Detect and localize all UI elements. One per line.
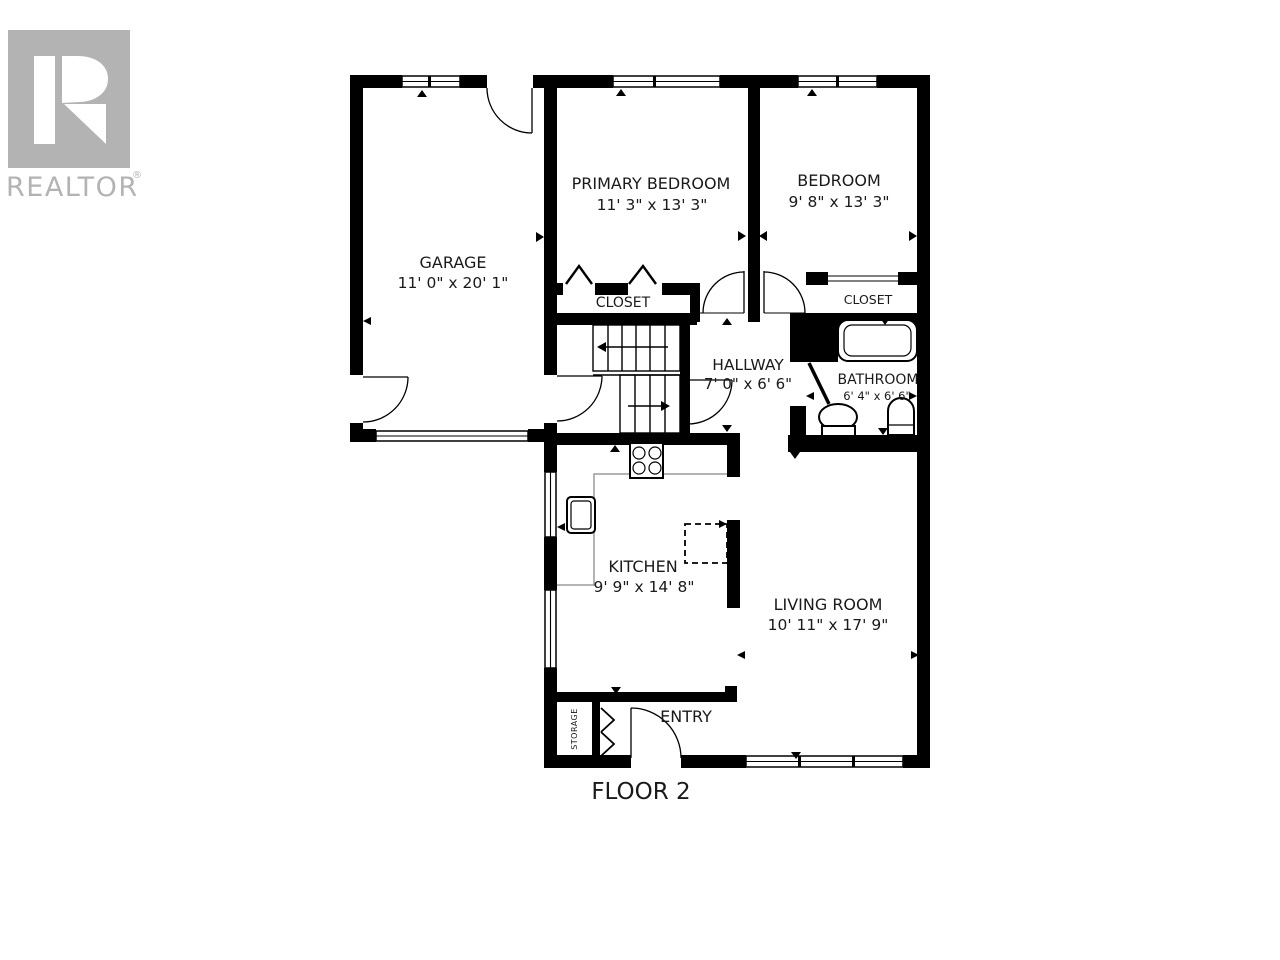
closet-bifold-doors xyxy=(566,266,656,284)
stove xyxy=(630,443,663,478)
garage-window xyxy=(402,76,460,87)
kitchen-dims: 9' 9" x 14' 8" xyxy=(594,578,695,596)
floor-plan-canvas: REALTOR ® xyxy=(0,0,1280,960)
kitchen-window-upper xyxy=(545,472,556,537)
exterior-door-top xyxy=(487,88,532,133)
primary-bedroom-door xyxy=(700,271,744,313)
registered-mark: ® xyxy=(132,170,142,181)
dashed-appliance xyxy=(685,524,727,563)
realtor-logo-text: REALTOR xyxy=(6,172,139,203)
floor-title: FLOOR 2 xyxy=(591,779,690,805)
primary-bedroom-label: PRIMARY BEDROOM xyxy=(572,174,731,193)
toilet xyxy=(819,404,857,436)
living-room-dims: 10' 11" x 17' 9" xyxy=(768,616,889,634)
bedroom-dims: 9' 8" x 13' 3" xyxy=(789,193,890,211)
bathroom-sink xyxy=(888,398,914,435)
realtor-logo: REALTOR ® xyxy=(6,30,142,203)
garage-label: GARAGE xyxy=(420,253,487,272)
primary-bedroom-dims: 11' 3" x 13' 3" xyxy=(597,196,708,214)
garage-side-door xyxy=(363,377,408,422)
bathtub xyxy=(838,320,917,361)
stairs xyxy=(593,325,680,433)
hallway-label: HALLWAY xyxy=(712,356,784,374)
storage-bifold-door xyxy=(601,708,614,756)
garage-landing-door xyxy=(557,376,602,421)
closet-bedroom-label: CLOSET xyxy=(844,292,893,307)
living-room-label: LIVING ROOM xyxy=(774,595,883,614)
bedroom-window xyxy=(798,76,877,87)
garage-dims: 11' 0" x 20' 1" xyxy=(398,274,509,292)
storage-label: STORAGE xyxy=(570,708,579,750)
closet-bedroom-opening xyxy=(828,276,898,281)
closet-primary-label: CLOSET xyxy=(596,295,651,311)
bathroom-label: BATHROOM xyxy=(837,372,918,388)
kitchen-label: KITCHEN xyxy=(608,557,677,576)
kitchen-window-lower xyxy=(545,590,556,668)
hallway-dims: 7' 0" x 6' 6" xyxy=(704,375,792,393)
bedroom-label: BEDROOM xyxy=(797,171,881,190)
primary-bedroom-window xyxy=(613,76,720,87)
garage-door xyxy=(376,431,528,441)
bathroom-dims: 6' 4" x 6' 6" xyxy=(843,389,911,403)
bedroom-door xyxy=(764,271,805,313)
entry-label: ENTRY xyxy=(660,707,712,726)
living-room-window xyxy=(746,756,903,767)
kitchen-sink xyxy=(567,497,595,533)
